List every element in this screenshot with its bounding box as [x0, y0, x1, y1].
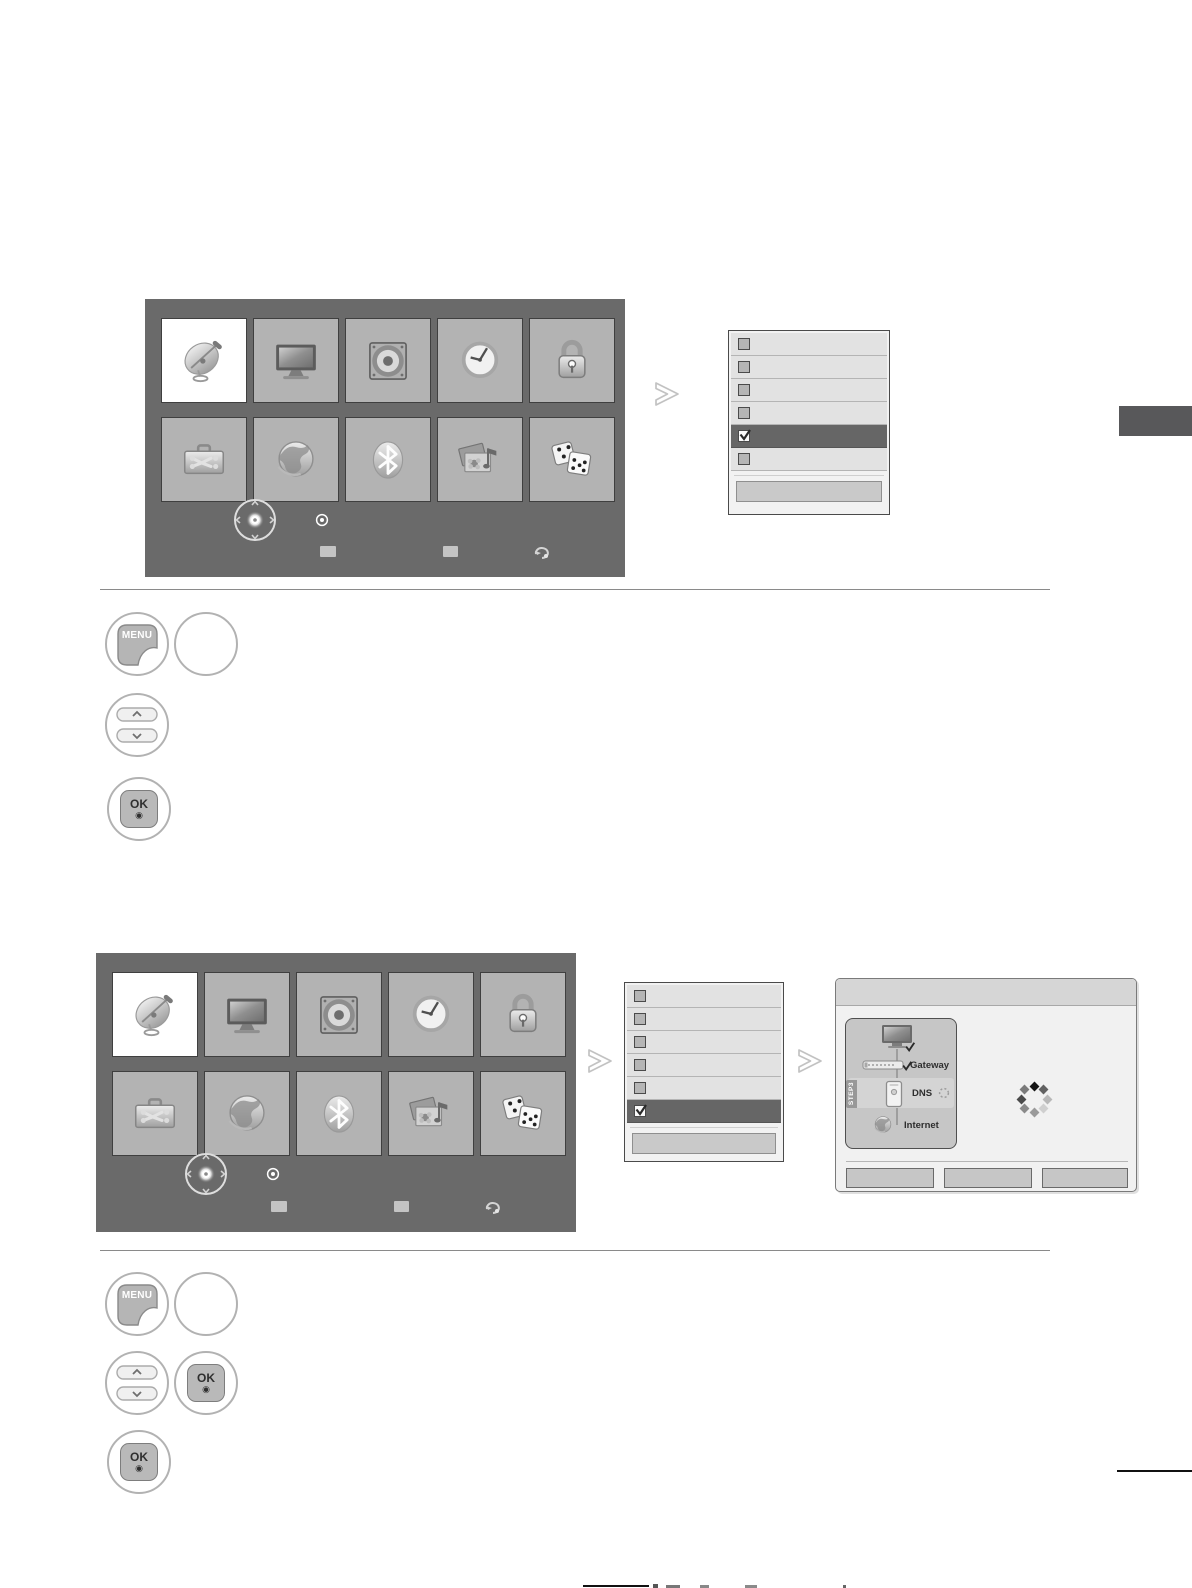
ok-fisheye-icon	[315, 513, 329, 527]
network-status-panel: Gateway DNS Internet STEP3	[835, 978, 1137, 1192]
next-chevron-icon	[793, 1044, 827, 1080]
tile-channel-setup	[161, 318, 247, 403]
option-row	[627, 985, 781, 1008]
hint-key-1	[271, 1201, 287, 1212]
ok-fisheye-icon	[266, 1167, 280, 1181]
option-row	[731, 356, 887, 379]
ok-key-icon: OK ◉	[187, 1364, 225, 1402]
checkbox-icon	[634, 1082, 646, 1094]
panel-button-3	[1042, 1168, 1128, 1188]
menu-key-label: MENU	[114, 1290, 160, 1301]
list-close-button	[736, 481, 882, 502]
tv-icon	[219, 987, 275, 1043]
toolbox-icon	[127, 1086, 183, 1142]
ok-key-label: OK	[130, 798, 148, 810]
clock-icon	[452, 333, 508, 389]
bluetooth-icon	[311, 1086, 367, 1142]
checkbox-icon	[738, 338, 750, 350]
ok-key-icon: OK ◉	[120, 1443, 158, 1481]
option-row	[731, 448, 887, 471]
next-chevron-icon	[650, 377, 684, 413]
tile-game	[480, 1071, 566, 1156]
tile-network	[253, 417, 339, 502]
option-row-highlighted	[731, 425, 887, 448]
remote-menu-key: MENU	[105, 1272, 169, 1336]
checkbox-icon	[634, 1059, 646, 1071]
padlock-icon	[495, 987, 551, 1043]
hint-key-2	[443, 546, 458, 557]
photo-music-icon	[403, 1086, 459, 1142]
ok-key-icon: OK ◉	[120, 790, 158, 828]
network-option-list-1	[728, 330, 890, 515]
tile-option	[161, 417, 247, 502]
remote-ok-key: OK ◉	[107, 1430, 171, 1494]
tile-picture	[253, 318, 339, 403]
checkbox-checked-icon	[738, 430, 750, 442]
checkbox-icon	[738, 453, 750, 465]
list-close-button	[632, 1133, 776, 1154]
dice-icon	[544, 432, 600, 488]
option-row	[731, 402, 887, 425]
next-chevron-icon	[583, 1044, 617, 1080]
bluetooth-icon	[360, 432, 416, 488]
dice-icon	[495, 1086, 551, 1142]
section-side-tab	[1119, 406, 1192, 436]
network-option-list-2	[624, 982, 784, 1162]
option-row-highlighted	[627, 1100, 781, 1123]
option-row	[627, 1077, 781, 1100]
loading-spinner-icon	[1014, 1079, 1054, 1119]
tile-picture	[204, 972, 290, 1057]
panel-button-2	[944, 1168, 1032, 1188]
tile-lock	[529, 318, 615, 403]
hint-key-2	[394, 1201, 409, 1212]
option-row	[627, 1054, 781, 1077]
network-diagram-box: Gateway DNS Internet STEP3	[845, 1018, 957, 1149]
ok-key-symbol: ◉	[202, 1385, 210, 1394]
checkbox-icon	[738, 407, 750, 419]
return-arrow-icon	[533, 544, 551, 559]
tile-audio	[296, 972, 382, 1057]
panel-separator	[846, 1161, 1128, 1162]
updown-arrows-icon	[111, 1357, 163, 1409]
remote-ok-key: OK ◉	[174, 1351, 238, 1415]
small-spinner-icon	[938, 1087, 950, 1099]
updown-arrows-icon	[111, 699, 163, 751]
nav-wheel-icon	[232, 497, 278, 543]
list-separator	[630, 1127, 778, 1128]
checkbox-icon	[634, 990, 646, 1002]
remote-updown-key	[105, 693, 169, 757]
footer-rule	[583, 1585, 649, 1587]
menu-key-icon	[114, 621, 160, 667]
checkbox-icon	[634, 1013, 646, 1025]
option-row	[731, 333, 887, 356]
tv-menu-screenshot-2	[96, 953, 576, 1232]
option-row	[731, 379, 887, 402]
tile-network	[204, 1071, 290, 1156]
ok-key-symbol: ◉	[135, 1464, 143, 1473]
separator-rule	[100, 1250, 1050, 1251]
ok-key-label: OK	[130, 1451, 148, 1463]
checkbox-checked-icon	[634, 1105, 646, 1117]
menu-key-icon	[114, 1281, 160, 1327]
manual-page: MENU OK ◉	[0, 0, 1192, 1588]
tv-menu-screenshot-1	[145, 299, 625, 577]
checkbox-icon	[738, 361, 750, 373]
dns-label: DNS	[912, 1088, 932, 1099]
checkbox-icon	[634, 1036, 646, 1048]
clipped-footer-text	[653, 1584, 658, 1588]
option-row	[627, 1008, 781, 1031]
network-status-header	[836, 979, 1136, 1006]
tile-audio	[345, 318, 431, 403]
nav-wheel-icon	[183, 1151, 229, 1197]
internet-label: Internet	[904, 1120, 939, 1131]
tile-lock	[480, 972, 566, 1057]
menu-key-label: MENU	[114, 630, 160, 641]
remote-updown-key	[105, 1351, 169, 1415]
hint-key-1	[320, 546, 336, 557]
satellite-dish-icon	[176, 333, 232, 389]
remote-menu-key: MENU	[105, 612, 169, 676]
ok-key-symbol: ◉	[135, 811, 143, 820]
panel-button-1	[846, 1168, 934, 1188]
clock-icon	[403, 987, 459, 1043]
check-icon	[904, 1041, 916, 1053]
globe-icon	[219, 1086, 275, 1142]
step3-badge: STEP3	[846, 1080, 857, 1108]
tile-bluetooth	[296, 1071, 382, 1156]
separator-rule	[100, 589, 1050, 590]
photo-music-icon	[452, 432, 508, 488]
toolbox-icon	[176, 432, 232, 488]
ok-key-label: OK	[197, 1372, 215, 1384]
option-row	[627, 1031, 781, 1054]
satellite-dish-icon	[127, 987, 183, 1043]
tile-time	[388, 972, 474, 1057]
dns-server-icon	[885, 1080, 903, 1108]
speaker-icon	[360, 333, 416, 389]
tv-icon	[268, 333, 324, 389]
tile-channel-setup	[112, 972, 198, 1057]
tile-option	[112, 1071, 198, 1156]
page-number-rule	[1117, 1470, 1192, 1472]
tile-bluetooth	[345, 417, 431, 502]
step-number-circle	[174, 1272, 238, 1336]
tile-my-media	[437, 417, 523, 502]
list-separator	[734, 475, 884, 476]
internet-globe-icon	[870, 1112, 896, 1138]
tile-my-media	[388, 1071, 474, 1156]
tile-time	[437, 318, 523, 403]
checkbox-icon	[738, 384, 750, 396]
globe-icon	[268, 432, 324, 488]
gateway-label: Gateway	[910, 1060, 949, 1071]
step-number-circle	[174, 612, 238, 676]
return-arrow-icon	[484, 1199, 502, 1214]
speaker-icon	[311, 987, 367, 1043]
tile-game	[529, 417, 615, 502]
remote-ok-key: OK ◉	[107, 777, 171, 841]
padlock-icon	[544, 333, 600, 389]
